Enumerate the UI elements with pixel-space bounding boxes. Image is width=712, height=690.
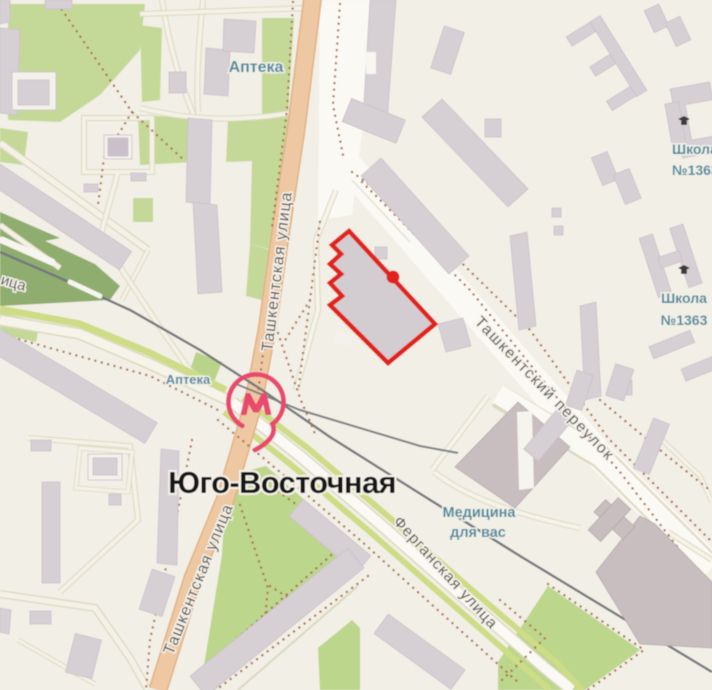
svg-text:Школа: Школа xyxy=(672,141,712,157)
svg-text:Юго-Восточная: Юго-Восточная xyxy=(168,465,396,500)
svg-text:№1363: №1363 xyxy=(672,162,712,178)
svg-text:Медицина: Медицина xyxy=(443,505,517,521)
svg-text:Аптека: Аптека xyxy=(229,59,284,76)
svg-text:Аптека: Аптека xyxy=(166,372,211,387)
svg-text:№1363: №1363 xyxy=(661,312,708,328)
svg-text:для вас: для вас xyxy=(450,525,506,541)
svg-text:Школа: Школа xyxy=(661,290,707,306)
